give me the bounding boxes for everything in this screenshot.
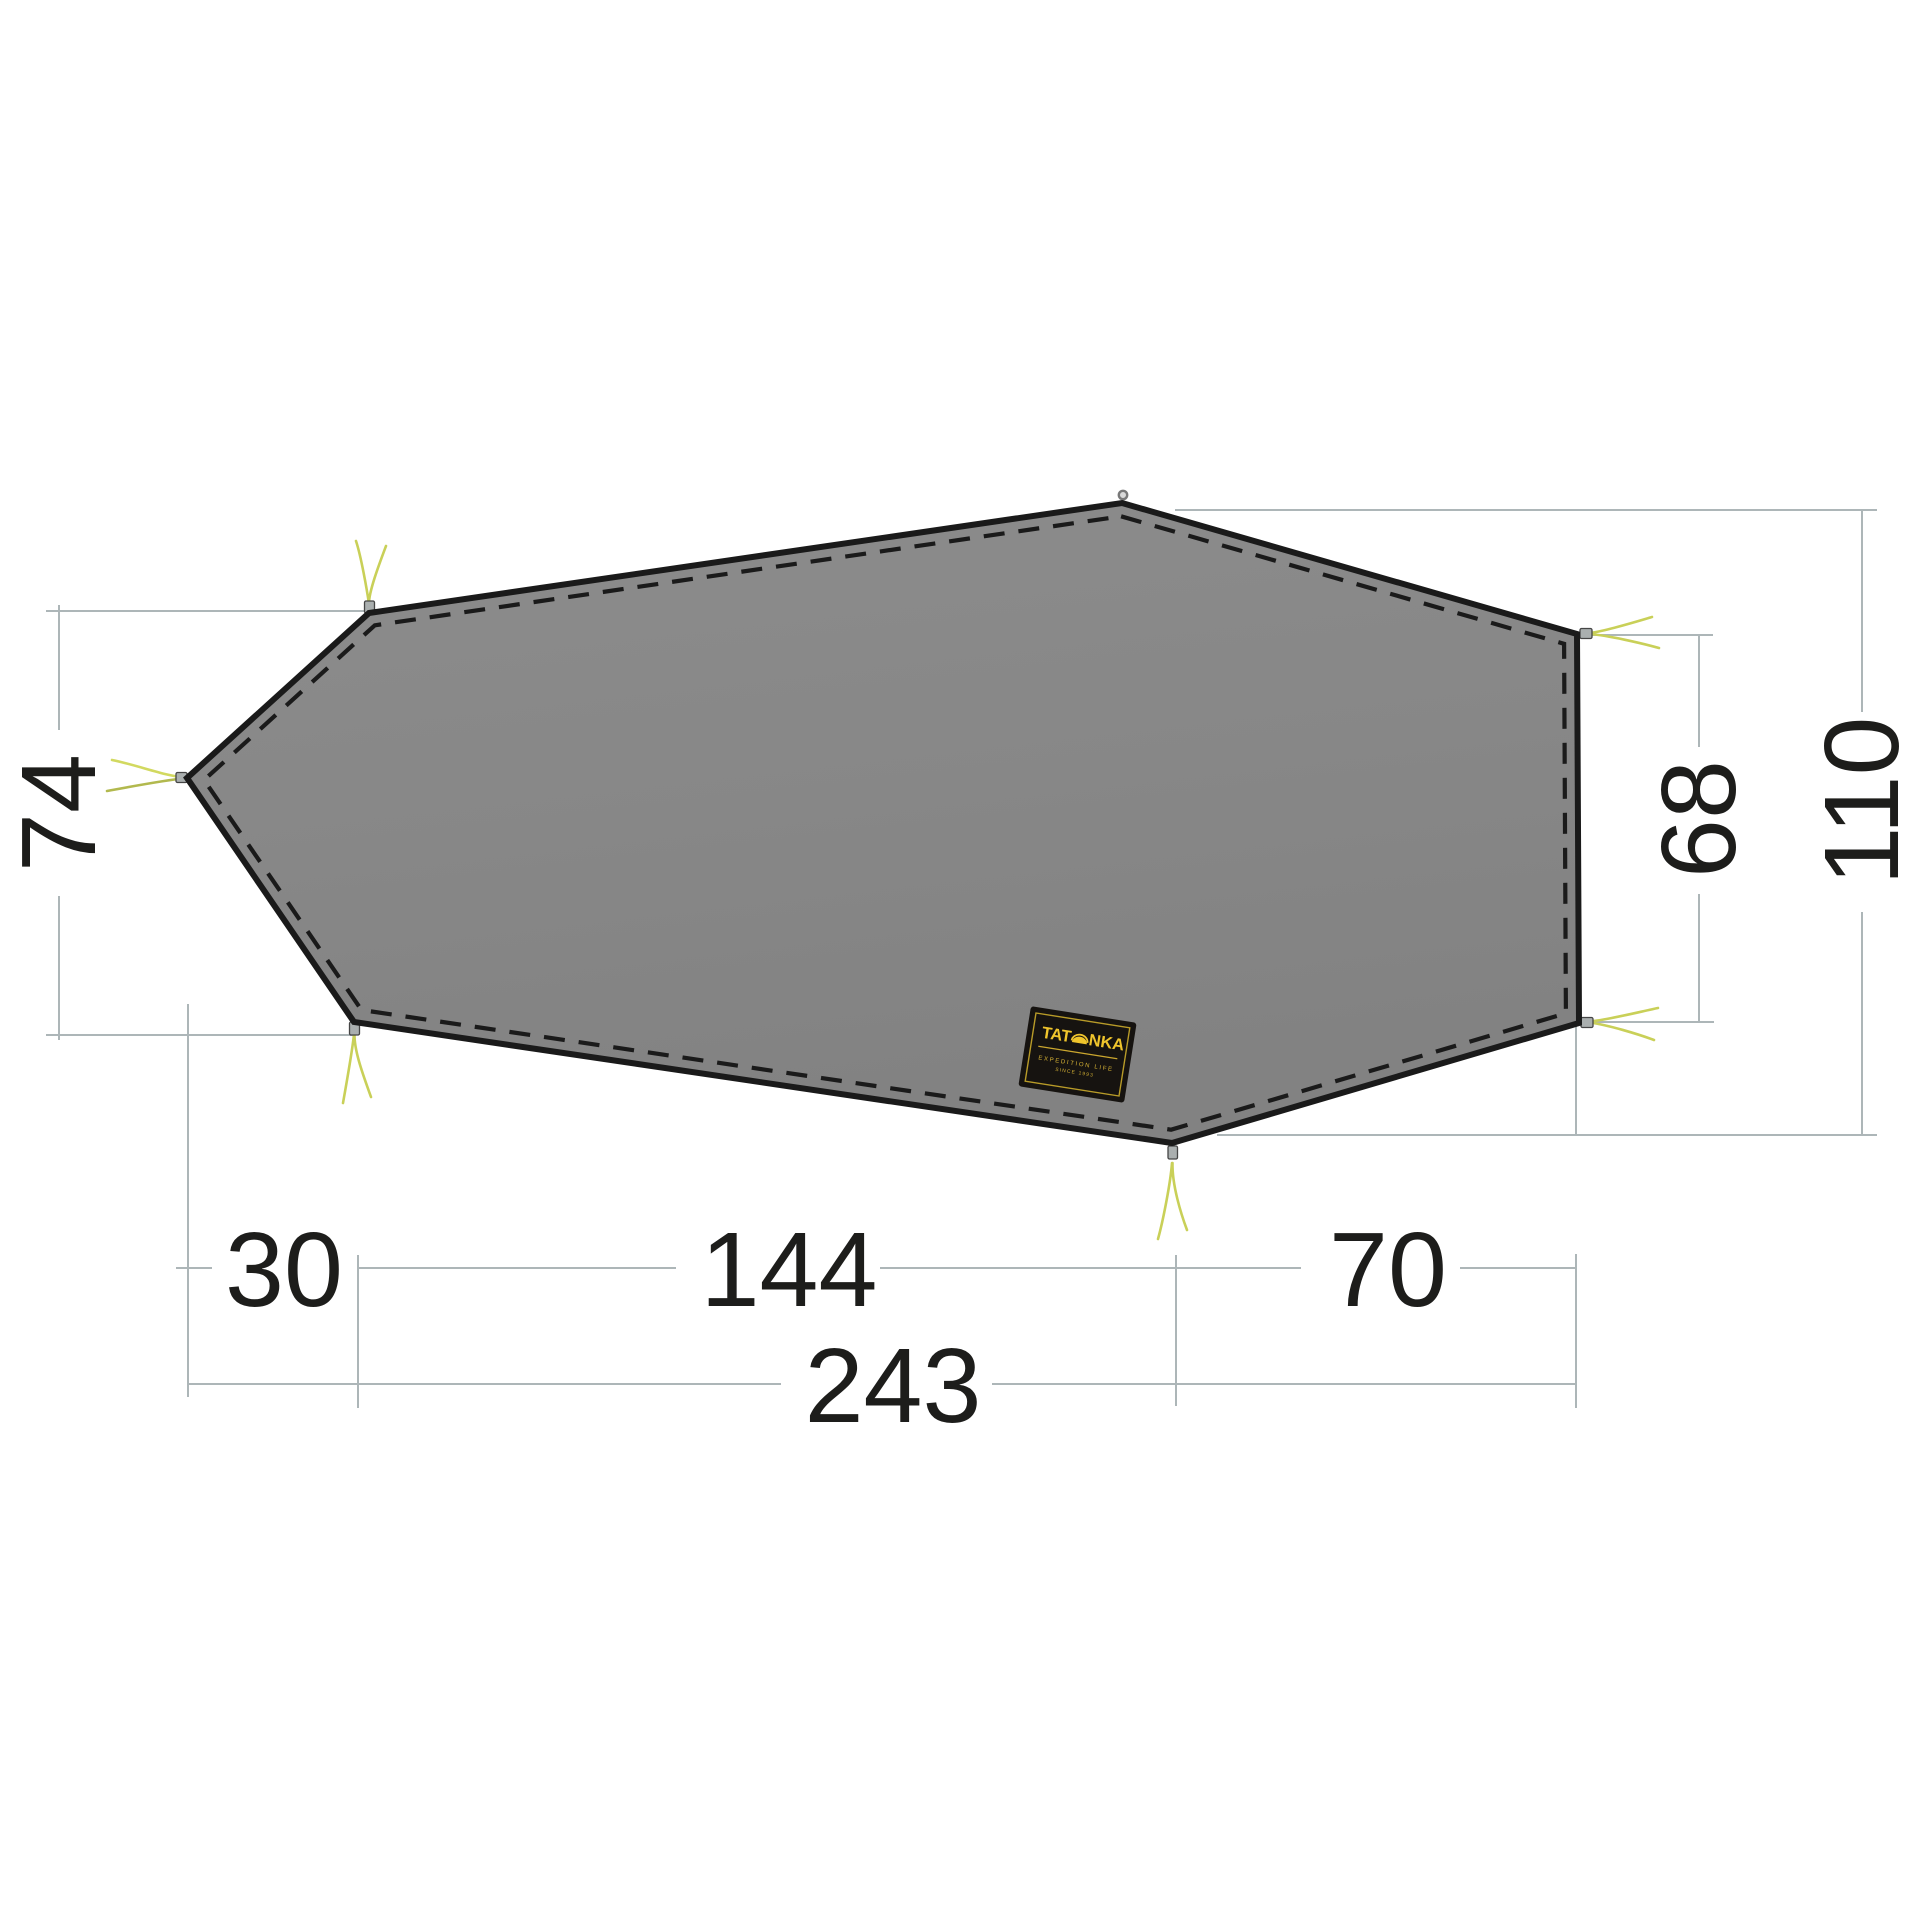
svg-text:110: 110 [1803,717,1920,886]
svg-text:70: 70 [1329,1211,1447,1329]
svg-text:144: 144 [701,1211,878,1329]
svg-text:74: 74 [0,754,118,872]
svg-text:243: 243 [805,1327,982,1445]
svg-text:68: 68 [1640,760,1758,878]
svg-text:30: 30 [225,1211,343,1329]
